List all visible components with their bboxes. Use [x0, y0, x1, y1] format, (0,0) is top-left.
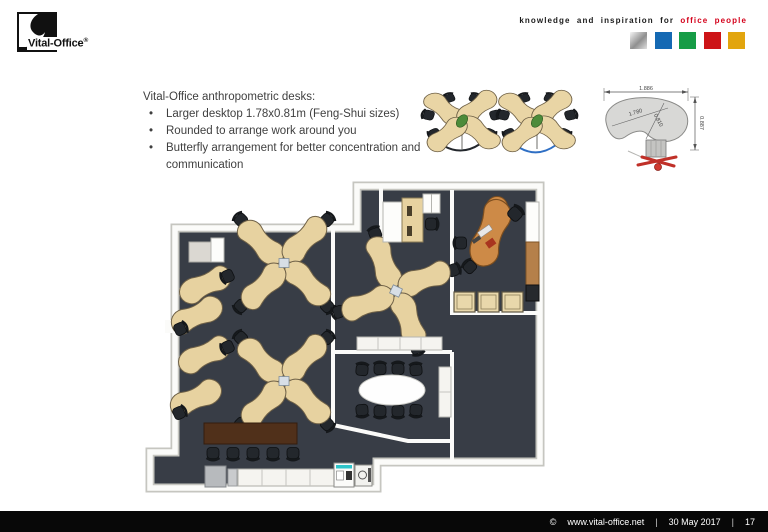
office-chair	[219, 268, 236, 285]
office-chair	[219, 339, 236, 356]
palette-square-silver	[630, 32, 647, 49]
office-chair	[207, 448, 220, 461]
palette-square-orange	[728, 32, 745, 49]
single-desk	[174, 332, 234, 377]
wood-table	[204, 423, 297, 444]
room-meeting	[355, 362, 451, 419]
fridge	[205, 466, 226, 487]
meeting-chair	[355, 362, 369, 376]
office-chair	[426, 218, 439, 231]
palette-square-green	[679, 32, 696, 49]
office-chair	[171, 404, 188, 421]
office-chair	[172, 320, 189, 337]
footer-bar: © www.vital-office.net | 30 May 2017 | 1…	[0, 511, 768, 532]
wardrobe	[402, 198, 423, 242]
appliance	[355, 465, 372, 486]
dim-overall-width: 1.886	[639, 86, 653, 92]
sideboard	[357, 337, 442, 350]
dim-desktop-depth: 0.810	[652, 113, 664, 128]
room-open-office	[166, 210, 337, 460]
butterfly-desk-render-right	[495, 87, 580, 155]
meeting-chair	[374, 406, 387, 419]
desk-top-outline	[606, 98, 688, 142]
desk-cluster	[326, 221, 466, 361]
bullet-item: Rounded to arrange work around you	[143, 123, 425, 140]
palette-square-blue	[655, 32, 672, 49]
meeting-chair	[355, 404, 369, 418]
guest-chair	[460, 257, 478, 275]
executive-chair	[506, 203, 526, 223]
tagline: knowledge and inspiration for office peo…	[519, 16, 747, 25]
single-desk	[167, 292, 227, 337]
palette-square-red	[704, 32, 721, 49]
office-chair	[267, 448, 280, 461]
brand-color-squares	[630, 32, 745, 49]
interior-walls	[333, 186, 540, 462]
footer-separator: |	[732, 517, 734, 527]
logo-wordmark: Vital-Office®	[27, 37, 90, 50]
wall-niche	[165, 320, 175, 333]
counter	[238, 469, 334, 486]
meeting-chair	[392, 406, 405, 419]
dim-desktop-width: 1.780	[628, 108, 643, 118]
cabinet	[383, 202, 402, 242]
butterfly-desk-render-left	[420, 87, 505, 155]
footer-page-number: 17	[745, 517, 755, 527]
bullet-item: Larger desktop 1.78x0.81m (Feng-Shui siz…	[143, 106, 425, 123]
guest-chair	[454, 237, 467, 250]
building-outline	[150, 186, 540, 488]
slide-title: Vital-Office anthropometric desks:	[143, 89, 425, 106]
executive-desk	[487, 197, 508, 218]
meeting-chair	[409, 362, 423, 376]
slide: Vital-Office® knowledge and inspiration …	[0, 0, 768, 532]
sink-unit	[334, 463, 354, 487]
cabinet	[526, 202, 539, 242]
desk-cluster	[231, 210, 336, 315]
tagline-black: knowledge and inspiration for	[519, 16, 674, 25]
footer-date: 30 May 2017	[669, 517, 721, 527]
cabinet	[439, 367, 451, 417]
slide-graphics: 1.886 0.887 1.780 0.810	[0, 0, 768, 532]
kitchenette	[205, 463, 372, 487]
tagline-red: office people	[680, 16, 747, 25]
desk-cluster	[231, 328, 336, 433]
meeting-table	[359, 375, 425, 405]
footer-url[interactable]: www.vital-office.net	[567, 517, 644, 527]
meeting-chair	[409, 404, 423, 418]
bullet-list: Larger desktop 1.78x0.81m (Feng-Shui siz…	[143, 106, 425, 174]
office-chair	[227, 448, 240, 461]
office-chair	[287, 448, 300, 461]
executive-desk	[465, 196, 516, 270]
floor-plan	[150, 186, 540, 488]
slide-text: Vital-Office anthropometric desks: Large…	[143, 89, 425, 174]
meeting-chair	[374, 362, 387, 375]
cabinet	[526, 242, 539, 285]
room-utility	[383, 194, 440, 242]
lounge-seats	[454, 292, 523, 312]
room-executive-office	[454, 196, 539, 312]
office-chair	[247, 448, 260, 461]
footer-separator: |	[655, 517, 657, 527]
dim-overall-depth: 0.887	[698, 116, 704, 130]
copyright-icon: ©	[550, 517, 557, 527]
cabinet	[228, 469, 237, 486]
red-base-icon	[638, 157, 676, 171]
room-middle-office	[326, 221, 466, 361]
single-desk	[175, 262, 235, 307]
cabinet	[211, 238, 224, 262]
registered-mark: ®	[83, 37, 88, 44]
cabinet	[423, 194, 440, 213]
bullet-item: Butterfly arrangement for better concent…	[143, 140, 425, 174]
cabinet	[526, 285, 539, 301]
desk-dimension-drawing: 1.886 0.887 1.780 0.810	[604, 86, 704, 171]
cabinet	[189, 242, 211, 262]
single-desk	[166, 375, 226, 420]
meeting-chair	[392, 362, 405, 375]
